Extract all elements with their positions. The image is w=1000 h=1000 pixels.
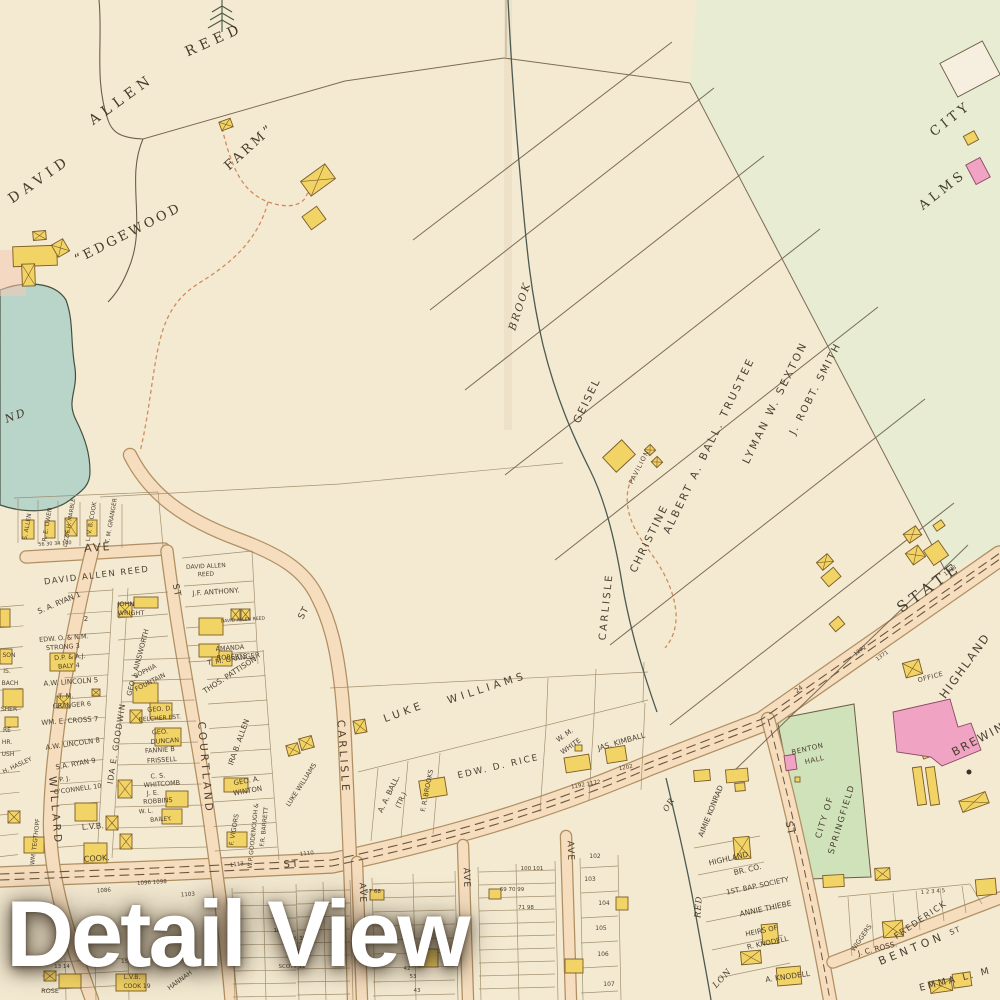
- map-fold: [504, 0, 512, 430]
- building-1: [22, 264, 36, 286]
- map-label-edge-frag-re: RE: [3, 727, 11, 734]
- building-23: [120, 834, 132, 849]
- map-label-stream-red: RED: [693, 895, 705, 919]
- building-57: [725, 768, 748, 783]
- building-81: [3, 689, 23, 707]
- map-label-lot-102: 102: [589, 853, 601, 860]
- map-label-lot-69-70-99: 69 70 99: [500, 887, 525, 893]
- map-label-edge-frag-bach: BACH: [2, 680, 19, 687]
- map-label-lot-105: 105: [595, 925, 607, 932]
- map-label-owner-cook: COOK.: [84, 853, 111, 864]
- map-label-edge-frag-son: SON: [2, 652, 15, 659]
- building-56: [694, 769, 711, 781]
- building-21: [75, 803, 97, 821]
- map-label-street-st-state-west: ST: [283, 858, 300, 870]
- map-label-lot-103: 103: [584, 876, 596, 883]
- building-64: [795, 777, 800, 782]
- building-65: [823, 874, 845, 887]
- map-label-owner-reed-east-2: REED: [198, 571, 215, 579]
- building-28: [199, 618, 223, 635]
- building-66: [875, 868, 891, 881]
- atlas-map-screenshot: DAVIDALLENREED“EDGEWOODFARM”CITYALMSBROO…: [0, 0, 1000, 1000]
- map-label-edge-frag-is: IS.: [3, 668, 11, 675]
- building-20: [118, 780, 132, 798]
- building-15: [92, 689, 100, 696]
- building-36: [353, 719, 367, 734]
- map-label-owner-wright-2: WRIGHT: [118, 609, 145, 617]
- map-label-lot-71-98: 71 98: [518, 905, 534, 911]
- map-label-owner-duncan-1: GEO.: [152, 727, 169, 736]
- map-label-edge-frag-hr: HR.: [2, 739, 12, 746]
- map-label-owner-rose: ROSE: [41, 987, 59, 995]
- building-73: [565, 959, 583, 973]
- building-63: [784, 754, 797, 770]
- map-label-lot-100-101: 100 101: [521, 866, 544, 872]
- map-label-lot-43: 43: [414, 988, 421, 994]
- map-label-owner-lvb: L.V.B.: [82, 821, 105, 832]
- map-label-lot-106: 106: [597, 951, 609, 958]
- map-label-lot-2: 2: [84, 615, 88, 623]
- building-82: [5, 717, 18, 727]
- atlas-map: DAVIDALLENREED“EDGEWOODFARM”CITYALMSBROO…: [0, 0, 1000, 1000]
- map-label-street-ave-bottom-3: AVE: [565, 841, 576, 862]
- overlay-title: Detail View: [6, 880, 468, 988]
- map-label-edge-frag-sher: SHER: [1, 706, 17, 713]
- building-83: [8, 811, 20, 823]
- map-label-lot-107: 107: [603, 981, 615, 988]
- map-label-owner-bailey-1: W. L.: [139, 808, 154, 816]
- map-label-owner-granger-6a: T. M.: [57, 691, 74, 700]
- building-72: [616, 897, 628, 910]
- building-2: [33, 230, 47, 240]
- building-68: [975, 878, 996, 896]
- building-22: [106, 816, 118, 830]
- map-label-owner-baly-2: BALY 4: [58, 661, 80, 671]
- map-label-owner-wright-1: JOHN: [117, 600, 135, 608]
- chimney-dot: [967, 770, 972, 775]
- building-12: [134, 597, 158, 608]
- map-label-lot-104: 104: [598, 900, 610, 907]
- map-label-edge-frag-ush: USH: [2, 751, 15, 758]
- building-79: [0, 609, 10, 627]
- building-58: [735, 783, 746, 792]
- building-61: [740, 950, 761, 965]
- map-label-owner-oconnell-1: P. J.: [59, 774, 71, 783]
